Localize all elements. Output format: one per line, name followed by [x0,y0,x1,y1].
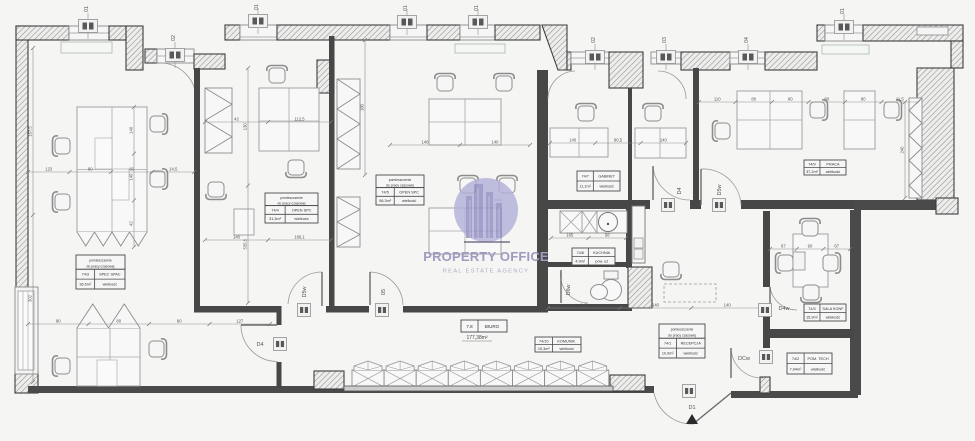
svg-text:DCw: DCw [738,356,750,362]
svg-text:wielkość: wielkość [599,185,613,189]
svg-text:140: 140 [492,140,500,145]
svg-text:D5w: D5w [717,184,723,195]
svg-text:74/10: 74/10 [539,339,549,343]
svg-text:80: 80 [88,167,93,172]
svg-text:14,5: 14,5 [169,167,178,172]
svg-text:D4: D4 [677,187,683,194]
svg-text:240: 240 [900,146,905,154]
svg-text:do pracy czasowej: do pracy czasowej [278,201,306,205]
svg-text:pomieszczenie: pomieszczenie [280,196,303,200]
svg-text:140: 140 [652,303,660,308]
svg-text:wielkość: wielkość [684,352,698,356]
svg-text:36,5m²: 36,5m² [79,283,92,287]
svg-text:80: 80 [56,319,61,324]
svg-text:140: 140 [580,303,588,308]
svg-text:80: 80 [751,97,756,102]
svg-text:186,1: 186,1 [294,235,305,240]
svg-text:wielkość: wielkość [826,315,840,319]
svg-text:pomieszczenie: pomieszczenie [671,327,694,331]
svg-text:80: 80 [177,319,182,324]
svg-text:37,2m²: 37,2m² [806,170,819,174]
svg-text:REAL ESTATE AGENCY: REAL ESTATE AGENCY [443,269,530,275]
svg-text:7,94m²: 7,94m² [790,367,803,371]
svg-text:140: 140 [724,303,732,308]
svg-text:140: 140 [569,138,577,143]
svg-text:4,9m²: 4,9m² [575,259,585,263]
svg-text:10,9m²: 10,9m² [662,352,675,356]
svg-text:80: 80 [861,97,866,102]
svg-text:POM. TECH: POM. TECH [808,357,829,361]
svg-text:67: 67 [781,244,786,249]
svg-text:90,5: 90,5 [614,138,623,143]
svg-text:80: 80 [824,97,829,102]
svg-text:BIURO: BIURO [485,324,500,329]
svg-text:KOMUNIK.: KOMUNIK. [557,339,576,343]
svg-text:wielkość: wielkość [294,217,308,221]
svg-text:74/2: 74/2 [792,357,799,361]
svg-text:302: 302 [28,294,33,302]
svg-text:SALA KONF: SALA KONF [822,307,844,311]
svg-text:140: 140 [129,126,134,134]
svg-text:74/9: 74/9 [808,162,815,166]
svg-text:pomieszczenie: pomieszczenie [389,178,412,182]
svg-text:05: 05 [381,289,387,295]
svg-text:02: 02 [171,35,177,41]
svg-text:11,1m²: 11,1m² [579,185,591,189]
svg-text:SPEC SPAC: SPEC SPAC [99,273,121,277]
svg-text:01: 01 [403,5,409,11]
svg-text:01: 01 [474,5,480,11]
svg-text:74/7: 74/7 [581,175,588,179]
svg-text:wielkość: wielkość [402,199,416,203]
svg-text:do pracy czasowej: do pracy czasowej [386,183,414,187]
svg-text:140: 140 [660,138,668,143]
svg-text:15,9m²: 15,9m² [806,315,819,319]
svg-text:74/3: 74/3 [808,307,815,311]
svg-text:110: 110 [714,97,721,102]
svg-text:wielkość: wielkość [811,367,825,371]
svg-text:165: 165 [566,233,574,238]
svg-text:74/3: 74/3 [82,273,89,277]
svg-text:80: 80 [788,97,793,102]
svg-text:pomieszczenie: pomieszczenie [89,258,112,262]
svg-text:130: 130 [243,123,248,131]
svg-text:42: 42 [234,117,239,122]
svg-text:01: 01 [84,6,90,12]
svg-text:31,3m²: 31,3m² [269,217,282,221]
svg-text:OPEN SPC: OPEN SPC [292,208,312,212]
svg-text:GABINET: GABINET [598,175,615,179]
svg-text:RECEPCJA: RECEPCJA [681,342,702,346]
svg-text:do pracy czasowej: do pracy czasowej [87,265,115,269]
svg-text:42: 42 [129,221,134,226]
svg-text:D5w: D5w [302,286,308,297]
svg-text:D6w: D6w [566,284,572,295]
svg-text:74/8: 74/8 [576,251,583,255]
svg-text:pow. uż: pow. uż [595,259,608,263]
svg-text:74/5: 74/5 [381,190,388,194]
svg-text:D4w: D4w [778,306,789,312]
svg-text:11,5: 11,5 [896,97,905,102]
svg-text:01: 01 [840,8,846,14]
svg-text:74/4: 74/4 [271,208,278,212]
svg-text:wielkość: wielkość [103,283,117,287]
svg-text:OPEN SPC: OPEN SPC [399,190,419,194]
svg-text:80: 80 [116,319,121,324]
svg-text:67: 67 [834,244,839,249]
svg-text:177,38m²: 177,38m² [466,335,487,341]
svg-text:74/1: 74/1 [664,342,671,346]
svg-text:140: 140 [129,173,134,181]
svg-text:140: 140 [422,140,430,145]
svg-text:PRACA: PRACA [826,162,840,166]
svg-text:02: 02 [591,37,597,43]
svg-text:157,5: 157,5 [28,126,33,137]
svg-text:58: 58 [605,233,610,238]
svg-text:wielkość: wielkość [826,170,840,174]
svg-text:D4: D4 [256,342,263,348]
svg-text:PROPERTY OFFICE: PROPERTY OFFICE [423,249,549,264]
svg-text:112,5: 112,5 [294,117,305,122]
svg-text:15,3m²: 15,3m² [538,347,551,351]
svg-text:123: 123 [45,167,53,172]
svg-text:180: 180 [360,103,365,111]
svg-text:03: 03 [662,37,668,43]
svg-text:wielkość: wielkość [560,347,574,351]
svg-text:04: 04 [744,37,750,43]
svg-text:90: 90 [808,244,813,249]
svg-text:56,3m²: 56,3m² [379,199,392,203]
svg-text:140: 140 [233,235,241,240]
svg-text:127: 127 [236,319,244,324]
svg-text:D1: D1 [688,405,695,411]
svg-text:01: 01 [254,4,260,10]
svg-text:do pracy czasowej: do pracy czasowej [668,334,696,338]
svg-text:KUCHNIA: KUCHNIA [593,251,611,255]
svg-text:7.8: 7.8 [466,324,473,329]
